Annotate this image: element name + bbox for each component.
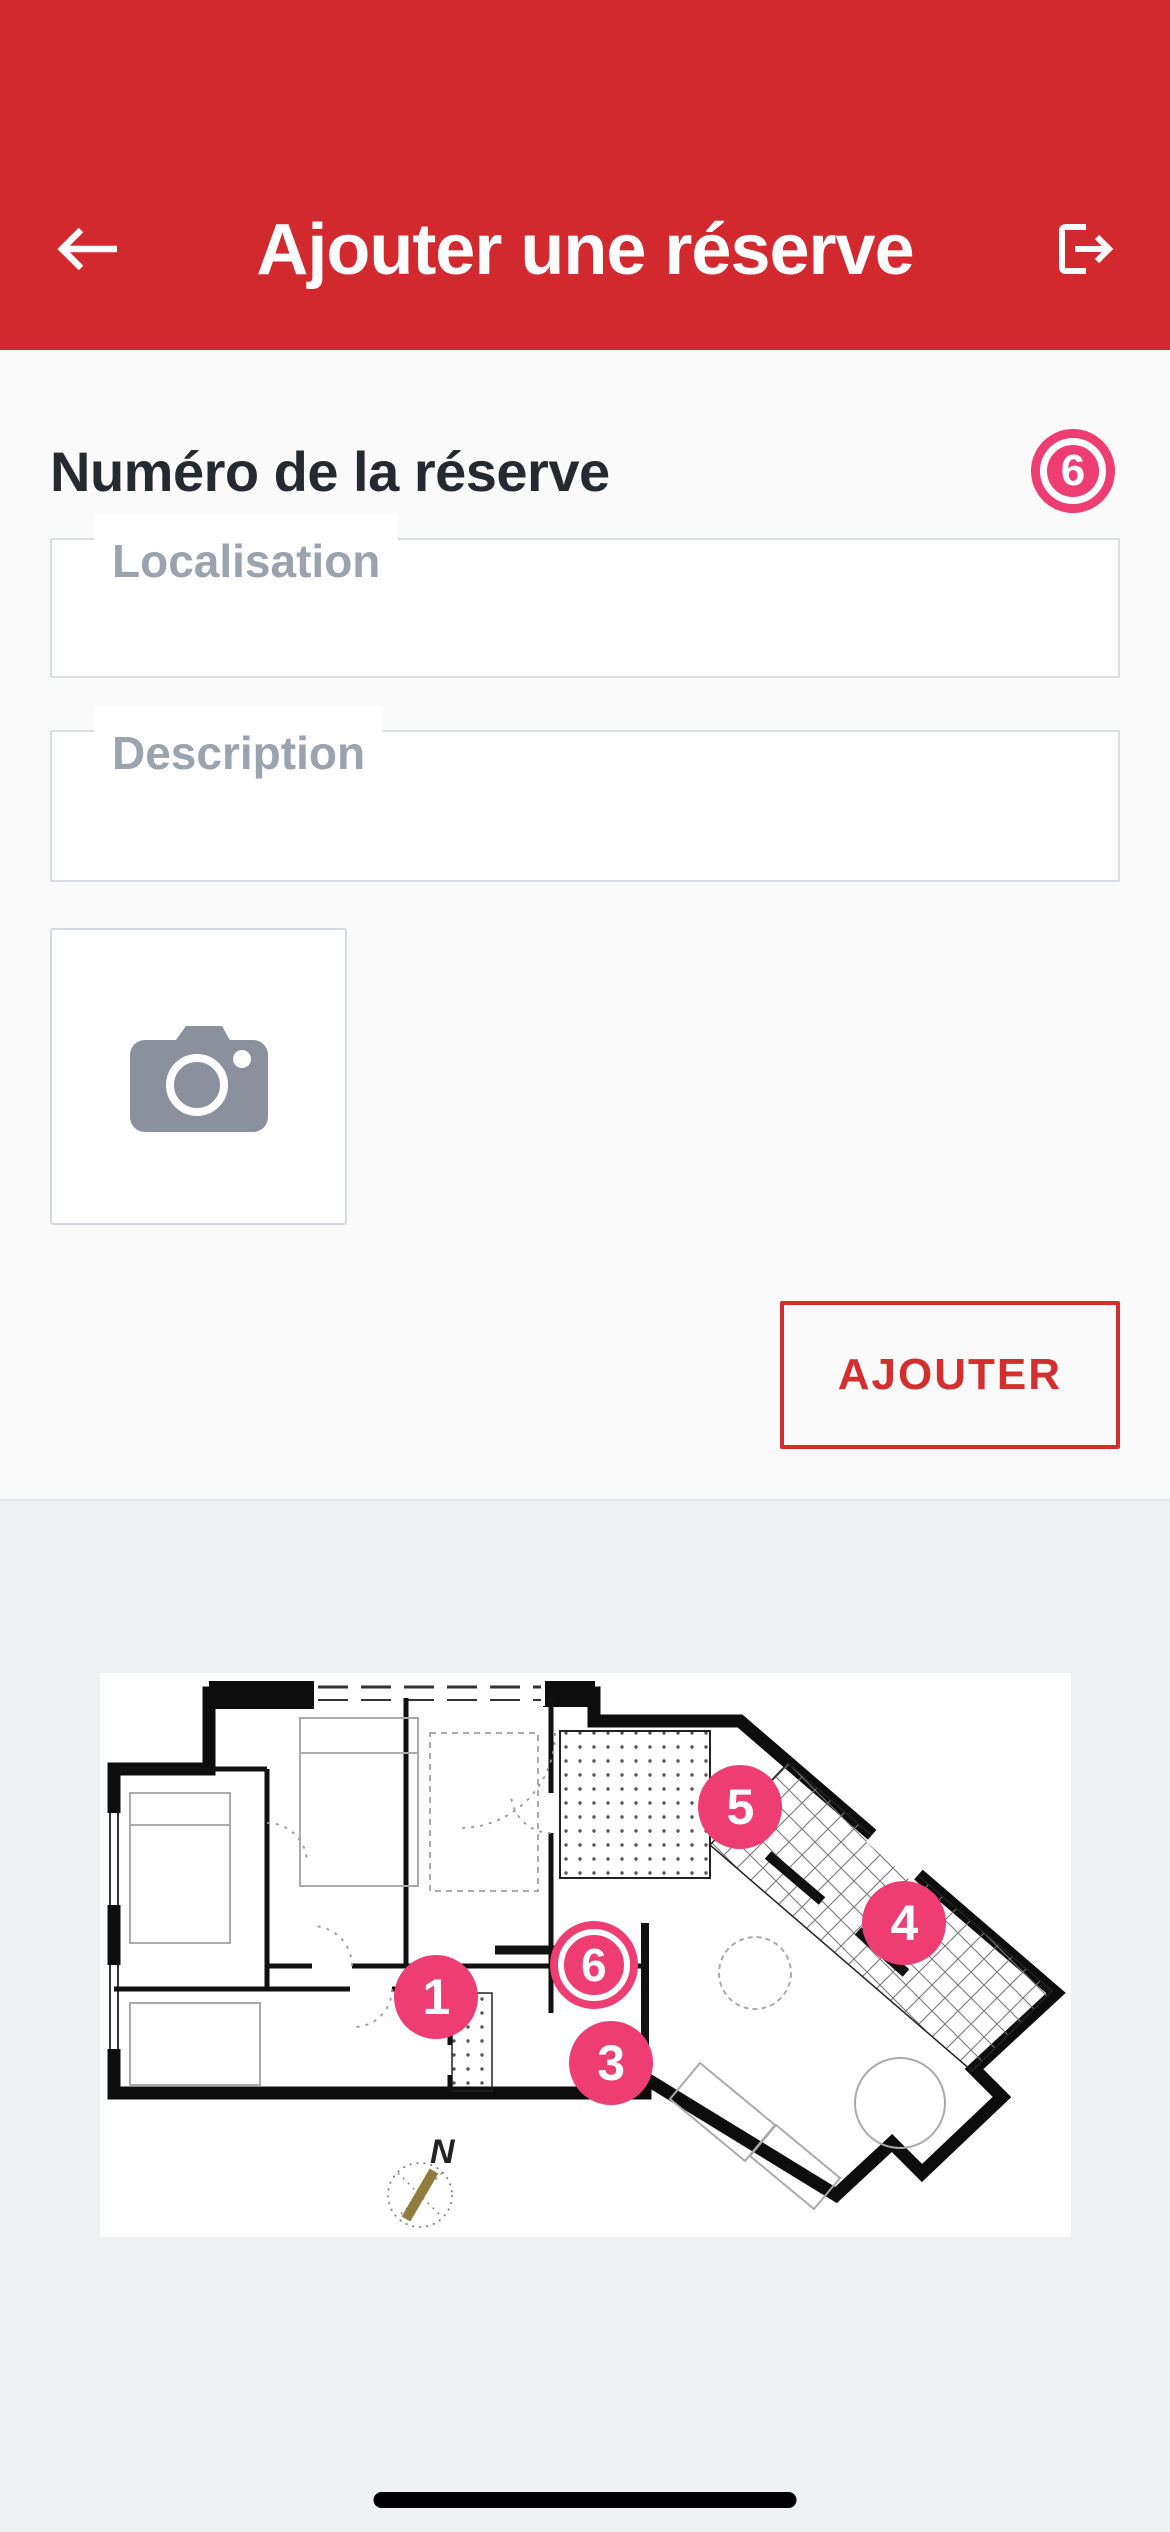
logout-icon <box>1053 220 1119 281</box>
page-title: Ajouter une réserve <box>256 209 913 291</box>
north-label: N <box>430 2133 456 2171</box>
reserve-number-badge: 6 <box>1040 438 1106 504</box>
home-indicator[interactable] <box>374 2492 797 2508</box>
plan-marker-5[interactable]: 5 <box>698 1765 782 1849</box>
compass: N <box>388 2133 456 2227</box>
description-field: Description <box>50 730 1120 882</box>
app-header: Ajouter une réserve <box>0 0 1170 350</box>
plan-marker-4[interactable]: 4 <box>862 1881 946 1965</box>
ajouter-button[interactable]: AJOUTER <box>780 1301 1120 1449</box>
plan-section: N 13654 <box>0 1499 1170 2532</box>
reserve-form: Numéro de la réserve 6 Localisation Desc… <box>0 350 1170 1499</box>
camera-icon <box>124 1014 274 1139</box>
bathroom-tiles <box>560 1731 710 1878</box>
localisation-field: Localisation <box>50 538 1120 678</box>
plan-marker-3[interactable]: 3 <box>569 2021 653 2105</box>
corner-wall-block <box>209 1681 314 1709</box>
localisation-input[interactable] <box>52 540 1118 676</box>
logout-button[interactable] <box>1050 220 1122 280</box>
reserve-number-heading: Numéro de la réserve <box>50 439 610 504</box>
plan-marker-6[interactable]: 6 <box>558 1929 630 2001</box>
heading-row: Numéro de la réserve 6 <box>50 350 1120 504</box>
submit-row: AJOUTER <box>50 1301 1120 1499</box>
plan-marker-1[interactable]: 1 <box>394 1955 478 2039</box>
back-button[interactable] <box>52 222 124 278</box>
description-input[interactable] <box>52 732 1118 880</box>
floor-plan-canvas[interactable]: N 13654 <box>100 1673 1071 2237</box>
add-photo-button[interactable] <box>50 928 347 1225</box>
nav-bar: Ajouter une réserve <box>0 198 1170 302</box>
back-arrow-icon <box>55 224 121 277</box>
